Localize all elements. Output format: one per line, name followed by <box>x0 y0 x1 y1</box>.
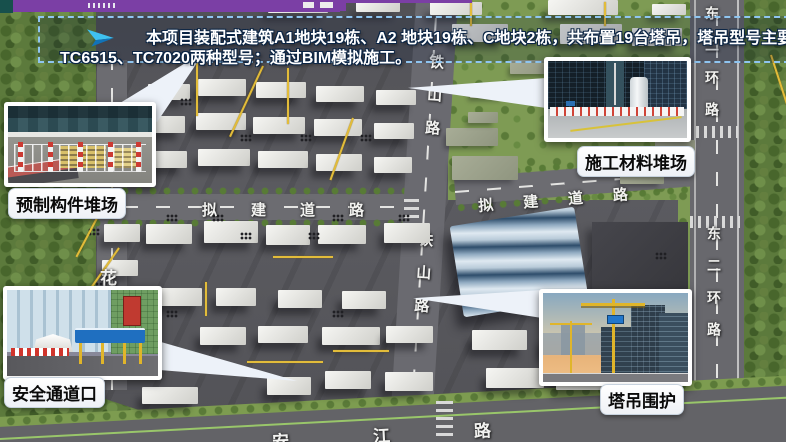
road-label-planned-left: 拟建道路 <box>202 199 398 220</box>
site-marker-dots <box>240 232 252 240</box>
building-block <box>158 288 202 306</box>
decor <box>543 373 688 383</box>
site-marker-dots <box>655 252 667 260</box>
top-purple-bar <box>8 3 340 12</box>
decor <box>550 107 684 116</box>
site-marker-dots <box>398 214 410 222</box>
tower-crane-jib-marker <box>333 350 389 352</box>
tower-crane-marker <box>287 68 289 124</box>
decor <box>630 77 648 109</box>
callout-label-material-yard: 施工材料堆场 <box>577 146 695 177</box>
decor <box>18 142 23 172</box>
tower-crane-jib-marker <box>247 361 323 363</box>
site-marker-dots <box>332 310 344 318</box>
decor <box>550 323 592 325</box>
building-block <box>356 2 400 12</box>
building-block <box>314 119 362 136</box>
building-block <box>430 2 482 15</box>
building-block <box>104 224 140 242</box>
site-marker-dots <box>308 232 320 240</box>
building-block <box>266 225 310 245</box>
precast-yard-photo <box>4 102 156 187</box>
decor <box>123 296 141 326</box>
building-block <box>374 123 414 139</box>
site-marker-dots <box>180 98 192 106</box>
building-block <box>652 4 686 15</box>
top-teal-chip <box>0 0 13 13</box>
info-banner: 本项目装配式建筑A1地块19栋、A2 地块19栋、C地块2栋，共布置19台塔吊，… <box>38 16 786 63</box>
tree-line <box>92 187 438 195</box>
building-block <box>258 151 308 168</box>
top-bar-block <box>320 2 333 8</box>
road-label-tieshan-2: 铁山路 <box>409 231 436 331</box>
building-block <box>200 327 246 345</box>
building-block <box>216 288 256 306</box>
decor <box>108 142 113 172</box>
callout-label-safety-entrance: 安全通道口 <box>4 377 105 408</box>
safety-entrance-photo <box>3 286 162 380</box>
building-block <box>342 291 386 309</box>
building-footprint-pad <box>468 112 498 123</box>
decor <box>139 340 142 364</box>
decor <box>601 327 635 377</box>
building-footprint-pad <box>452 156 518 180</box>
decor <box>566 101 575 106</box>
decor <box>101 340 104 364</box>
building-block <box>258 326 308 343</box>
site-marker-dots <box>360 134 372 142</box>
building-block <box>386 326 433 343</box>
building-block <box>142 387 198 404</box>
building-block <box>278 290 322 308</box>
site-marker-dots <box>300 134 312 142</box>
decor <box>136 142 141 172</box>
building-block <box>318 225 366 244</box>
building-footprint-pad <box>446 128 498 146</box>
building-block <box>376 90 416 105</box>
site-marker-dots <box>166 214 178 222</box>
decor <box>11 348 69 356</box>
building-block <box>374 157 412 173</box>
decor <box>79 340 82 364</box>
crane-enclosure-photo <box>539 289 692 386</box>
building-block <box>256 82 306 98</box>
building-block <box>198 79 246 96</box>
building-block <box>322 327 380 345</box>
top-bar-block <box>303 2 314 8</box>
building-block <box>146 224 192 244</box>
building-block <box>548 0 618 15</box>
tower-crane-marker <box>205 282 207 316</box>
callout-label-crane-enclosure: 塔吊围护 <box>600 384 684 415</box>
slide: 东二环路 东二环路 铁山路 铁山路 安江路 拟建道路 拟建道路 花 <box>0 0 786 442</box>
decor <box>123 340 126 364</box>
decor <box>581 303 645 306</box>
decor <box>659 313 688 377</box>
callout-label-precast-yard: 预制构件堆场 <box>8 188 126 219</box>
building-block <box>385 372 433 391</box>
building-block <box>198 149 250 166</box>
crosswalk <box>436 400 453 436</box>
decor <box>75 328 145 343</box>
building-block <box>486 368 544 388</box>
decor <box>607 315 624 324</box>
building-block <box>253 117 305 134</box>
site-marker-dots <box>240 134 252 142</box>
decor <box>570 321 572 377</box>
tower-crane-jib-marker <box>273 256 333 258</box>
building-block <box>472 330 527 350</box>
top-bar-ticks <box>88 3 118 8</box>
road-label-tieshan-1: 铁山路 <box>420 53 447 153</box>
building-block <box>325 371 371 389</box>
decor <box>8 106 152 118</box>
building-block <box>316 86 364 102</box>
material-yard-photo <box>544 57 691 142</box>
road-label-ring-2: 东二环路 <box>704 226 724 354</box>
building-block <box>384 223 430 243</box>
banner-text-line2: TC6515、TC7020两种型号；通过BIM模拟施工。 <box>60 44 411 68</box>
decor <box>644 61 687 109</box>
decor <box>612 299 615 377</box>
decor <box>78 142 83 172</box>
site-marker-dots <box>166 310 178 318</box>
decor <box>614 63 616 105</box>
decor <box>561 325 585 355</box>
decor <box>48 142 53 172</box>
